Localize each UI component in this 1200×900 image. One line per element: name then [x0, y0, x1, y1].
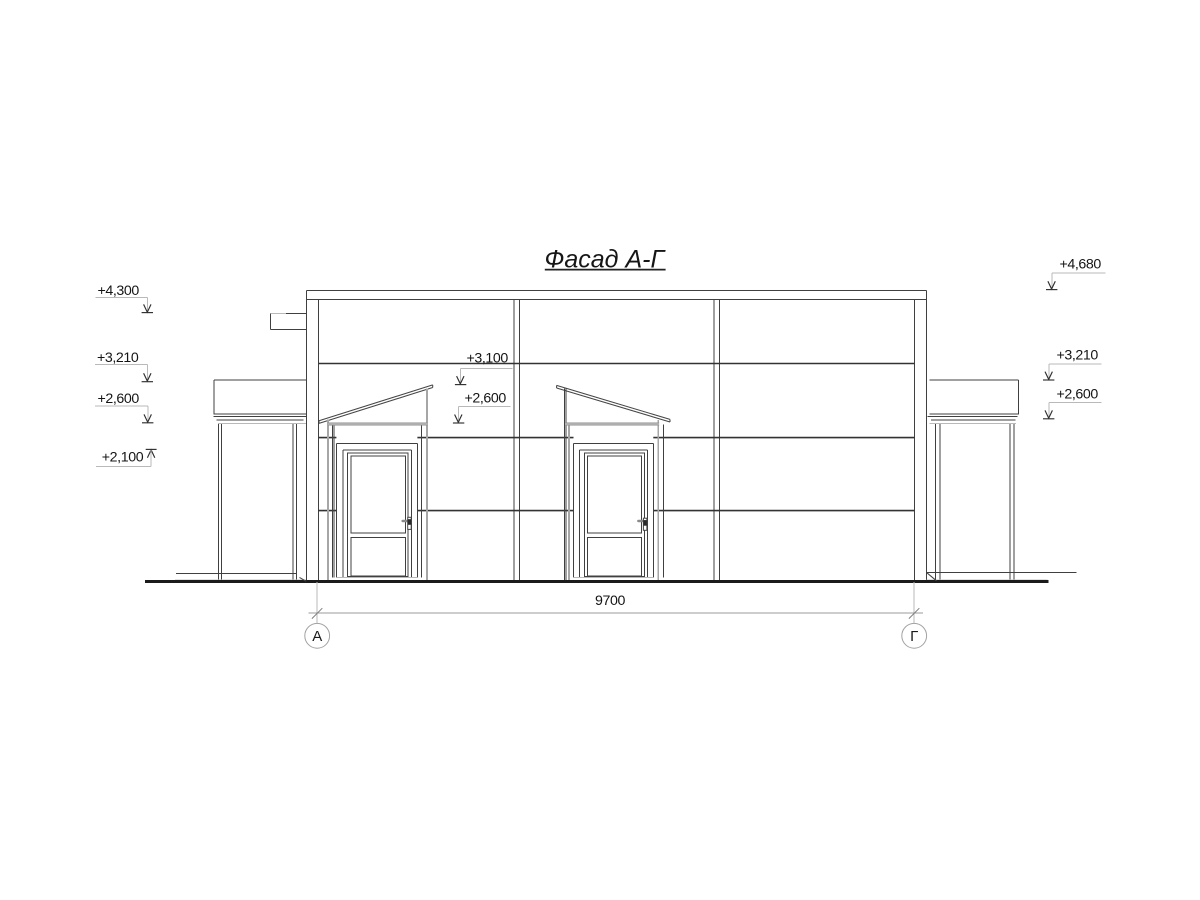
svg-text:+3,210: +3,210	[97, 350, 139, 366]
svg-text:+2,600: +2,600	[465, 390, 507, 406]
svg-text:9700: 9700	[595, 593, 625, 609]
svg-text:+3,210: +3,210	[1057, 347, 1099, 363]
svg-text:+2,100: +2,100	[102, 449, 144, 465]
svg-text:+3,100: +3,100	[467, 350, 509, 366]
svg-text:+4,680: +4,680	[1060, 256, 1102, 272]
svg-text:+2,600: +2,600	[98, 391, 140, 407]
svg-text:Г: Г	[910, 628, 918, 645]
svg-text:+4,300: +4,300	[98, 283, 140, 299]
svg-text:А: А	[312, 628, 322, 645]
svg-text:+2,600: +2,600	[1057, 386, 1099, 402]
